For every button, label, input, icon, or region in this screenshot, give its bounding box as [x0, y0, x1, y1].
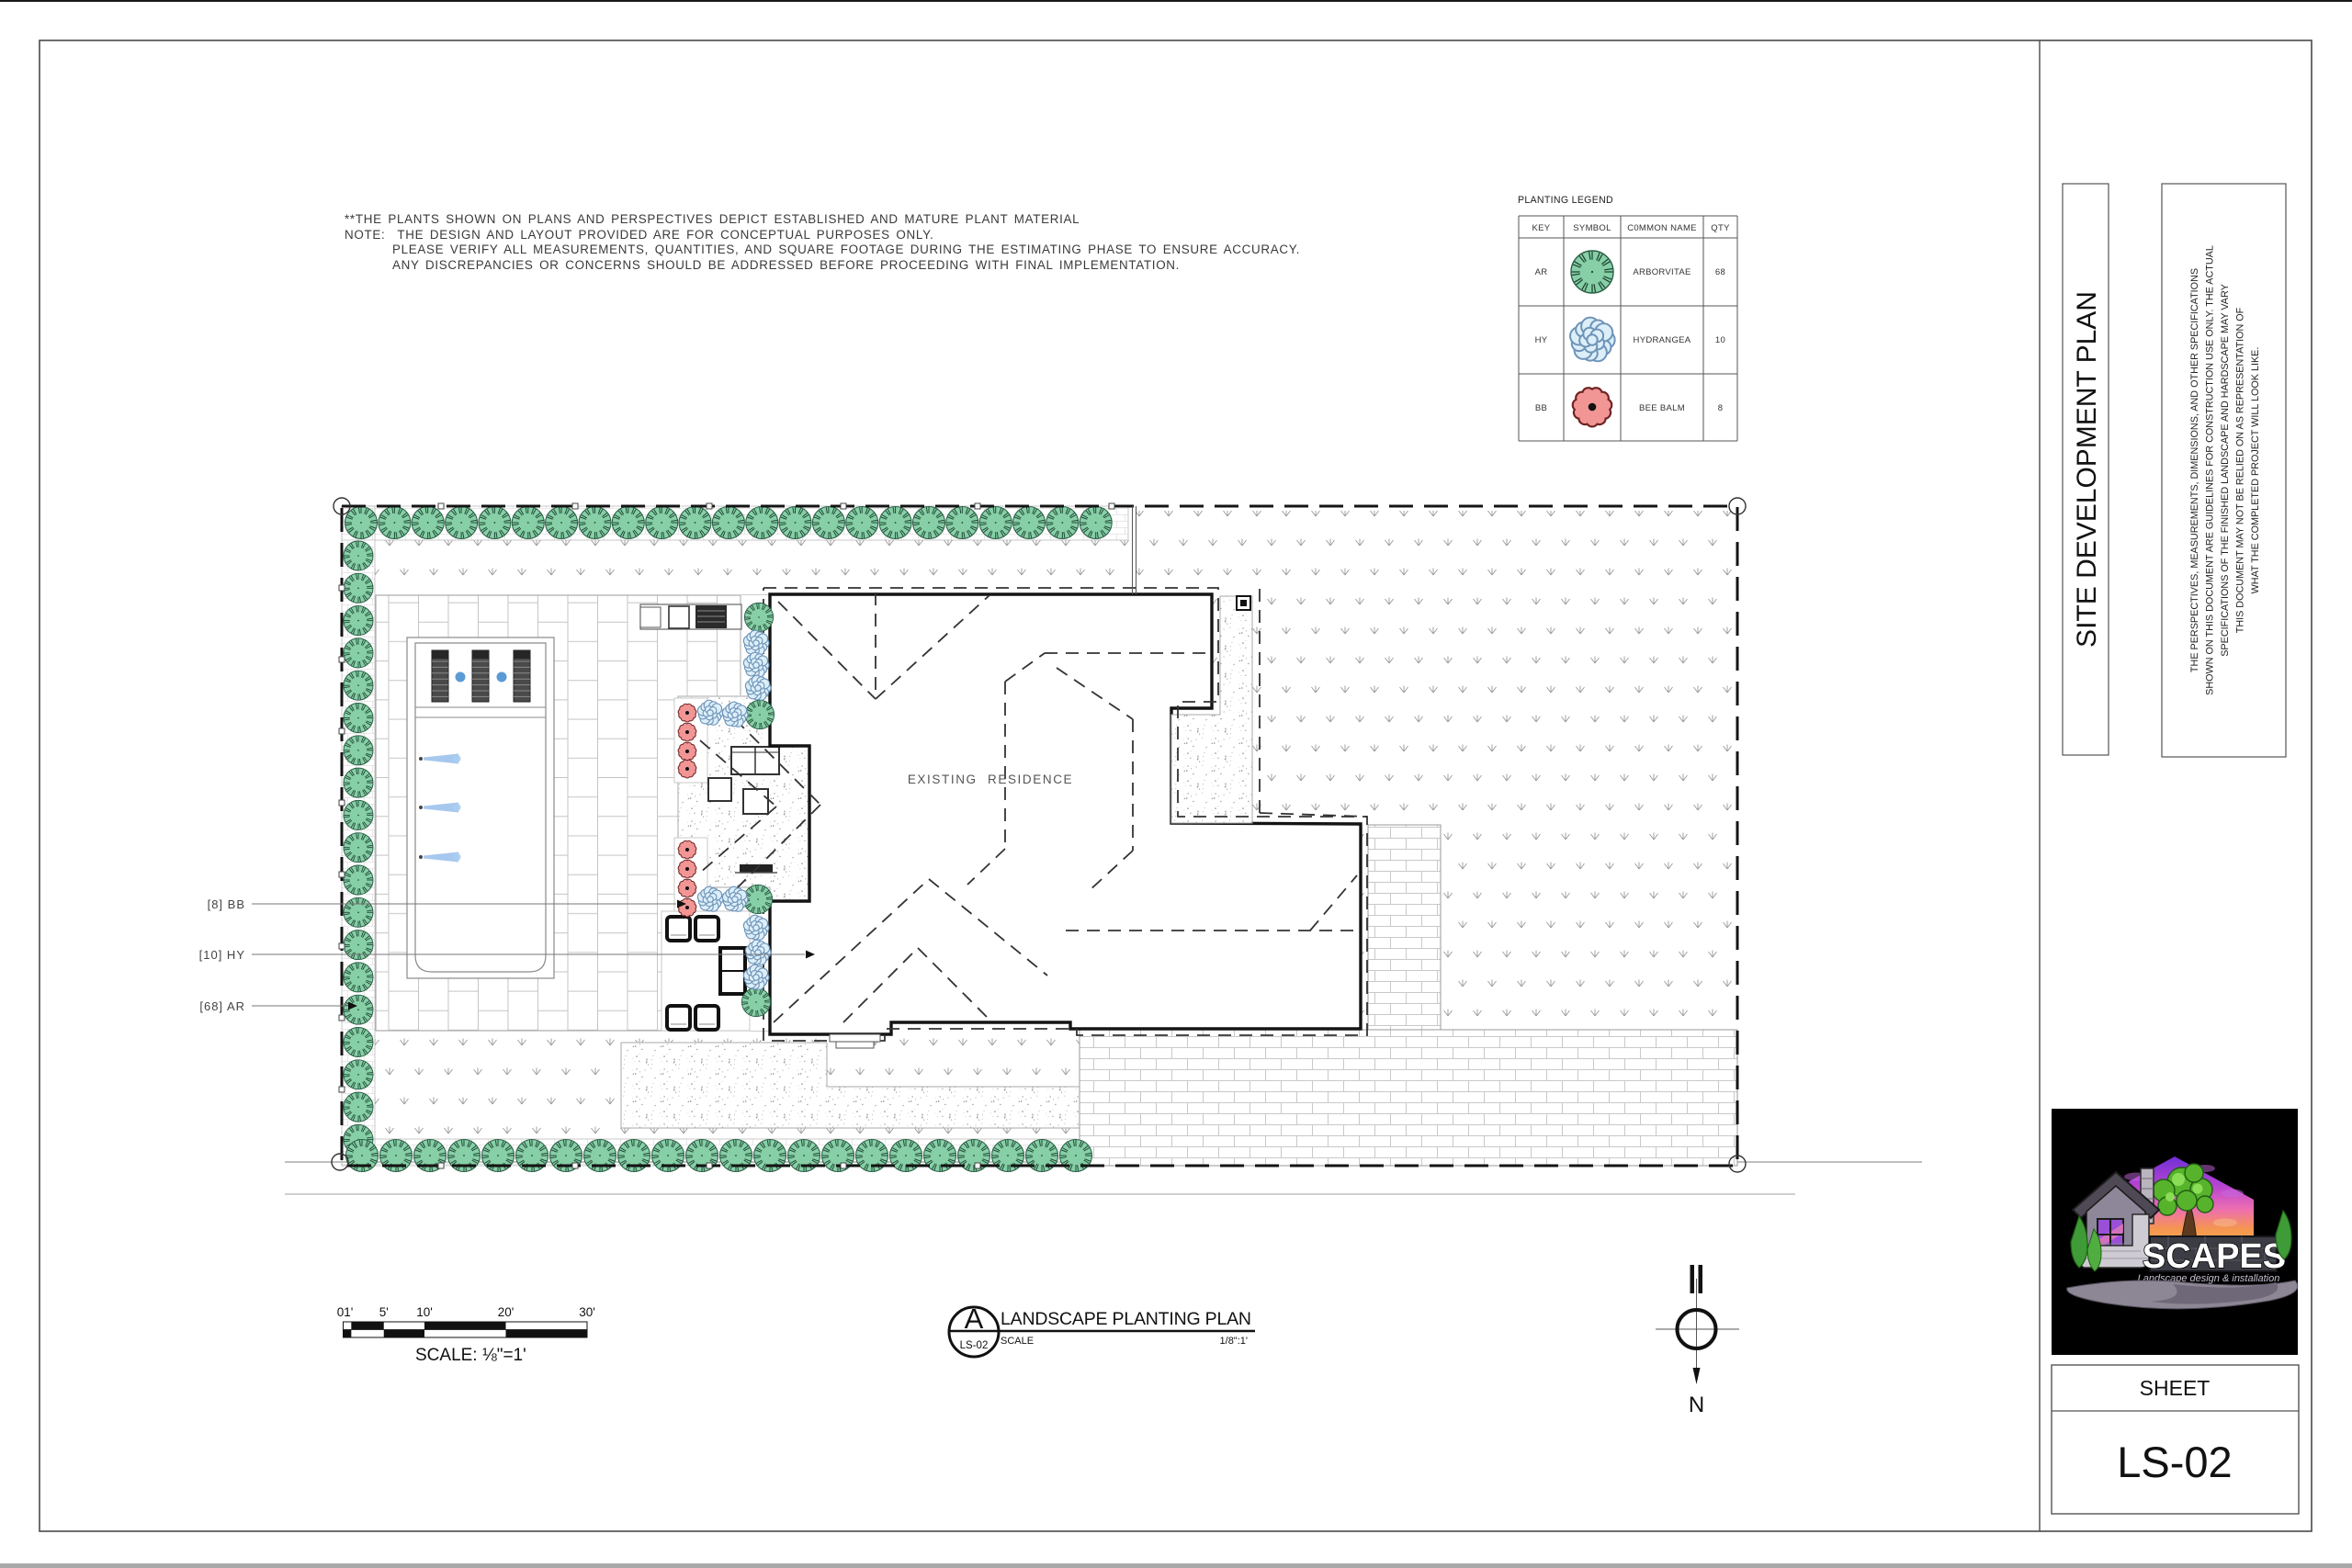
- svg-text:SHOWN ON THIS DOCUMENT ARE GUI: SHOWN ON THIS DOCUMENT ARE GUIDELINES FO…: [2205, 245, 2216, 695]
- svg-text:HYDRANGEA: HYDRANGEA: [1634, 335, 1691, 345]
- svg-text:SPECIFICATIONS OF THE FINISHED: SPECIFICATIONS OF THE FINISHED LANDSCAPE…: [2220, 284, 2231, 657]
- svg-text:PLANTING LEGEND: PLANTING LEGEND: [1518, 195, 1613, 206]
- svg-text:**THE PLANTS SHOWN ON PLANS AN: **THE PLANTS SHOWN ON PLANS AND PERSPECT…: [345, 212, 1080, 226]
- svg-text:PLEASE VERIFY ALL MEASUREMENTS: PLEASE VERIFY ALL MEASUREMENTS, QUANTITI…: [392, 243, 1300, 256]
- svg-text:5': 5': [379, 1305, 389, 1319]
- svg-text:N: N: [1689, 1393, 1704, 1417]
- svg-text:10': 10': [416, 1305, 433, 1319]
- svg-text:KEY: KEY: [1532, 223, 1551, 233]
- svg-text:ARBORVITAE: ARBORVITAE: [1633, 267, 1690, 277]
- svg-text:LS-02: LS-02: [960, 1340, 989, 1351]
- svg-text:01': 01': [337, 1305, 354, 1319]
- svg-text:BB: BB: [1535, 403, 1547, 413]
- svg-text:20': 20': [498, 1305, 514, 1319]
- svg-text:QTY: QTY: [1711, 223, 1730, 233]
- svg-text:10: 10: [1715, 335, 1725, 345]
- svg-text:68: 68: [1715, 267, 1725, 277]
- svg-text:SCALE: ⅛"=1': SCALE: ⅛"=1': [415, 1346, 526, 1365]
- svg-text:AR: AR: [1535, 267, 1548, 277]
- svg-text:HY: HY: [1535, 335, 1548, 345]
- svg-text:SCAPES: SCAPES: [2143, 1237, 2286, 1276]
- svg-text:SYMBOL: SYMBOL: [1573, 223, 1611, 233]
- svg-text:C0MMON NAME: C0MMON NAME: [1627, 223, 1697, 233]
- svg-text:LS-02: LS-02: [2117, 1438, 2232, 1486]
- svg-text:SHEET: SHEET: [2140, 1376, 2211, 1400]
- svg-text:30': 30': [579, 1305, 595, 1319]
- svg-text:BEE BALM: BEE BALM: [1639, 403, 1685, 413]
- svg-text:THE PERSPECTIVES, MEASUREMENTS: THE PERSPECTIVES, MEASUREMENTS, DIMENSIO…: [2189, 268, 2200, 672]
- svg-text:THIS DOCUMENT MAY NOT BE RELIE: THIS DOCUMENT MAY NOT BE RELIED ON AS RE…: [2235, 307, 2246, 633]
- svg-text:WHAT THE COMPLETED PROJECT WI: WHAT THE COMPLETED PROJECT WILL LOOK LIK…: [2250, 347, 2261, 594]
- svg-text:8: 8: [1718, 403, 1724, 413]
- svg-text:LANDSCAPE PLANTING PLAN: LANDSCAPE PLANTING PLAN: [1001, 1309, 1251, 1329]
- svg-text:ANY DISCREPANCIES OR CONCERNS: ANY DISCREPANCIES OR CONCERNS SHOULD BE …: [392, 258, 1180, 272]
- svg-text:SCALE: SCALE: [1001, 1336, 1034, 1347]
- svg-text:SITE DEVELOPMENT PLAN: SITE DEVELOPMENT PLAN: [2072, 291, 2102, 648]
- svg-text:1/8":1': 1/8":1': [1220, 1336, 1248, 1347]
- svg-text:NOTE: THE DESIGN AND LAYOUT P: NOTE: THE DESIGN AND LAYOUT PROVIDED ARE…: [345, 228, 933, 242]
